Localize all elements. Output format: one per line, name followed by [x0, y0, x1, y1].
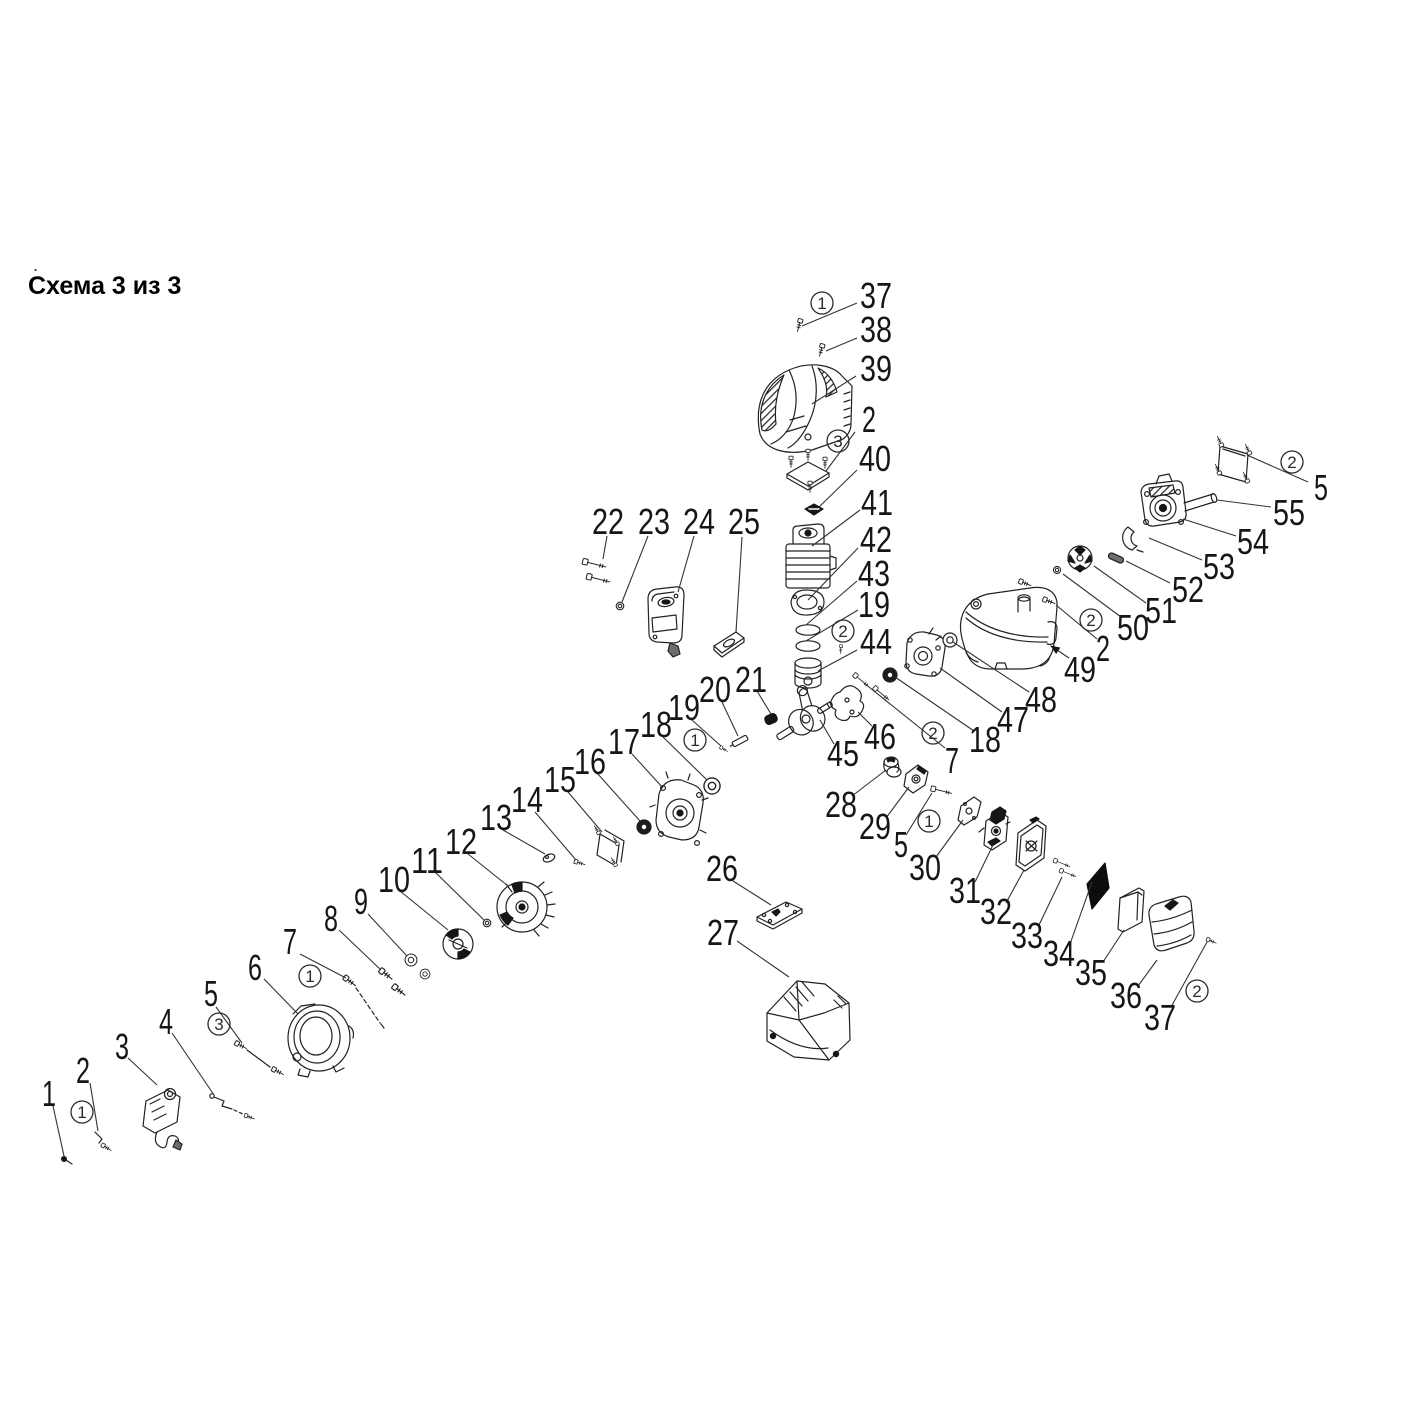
part-label-24-27: 24 — [683, 501, 715, 542]
part-label-2-3: 2 — [862, 399, 876, 440]
screw-small-icon — [839, 645, 843, 654]
part-label-12-38: 12 — [445, 821, 477, 862]
part-label-18-21: 18 — [969, 719, 1001, 760]
part-label-36-61: 36 — [1110, 975, 1142, 1016]
part-screw-set-5 — [234, 1040, 285, 1076]
part-label-13-37: 13 — [480, 797, 512, 838]
diagram-canvas: . Схема 3 из 3 — [0, 0, 1425, 1425]
part-filter-foam-35 — [1118, 888, 1144, 932]
leader-line-3-47 — [128, 1058, 157, 1085]
leader-line-26-50 — [733, 881, 771, 905]
part-label-1-49: 1 — [42, 1073, 56, 1114]
part-screw-2 — [95, 1132, 112, 1152]
leader-line-38-1 — [826, 338, 857, 351]
part-label-5-10: 5 — [1314, 467, 1328, 508]
part-label-2-17: 2 — [1096, 628, 1110, 669]
oil-seal-icon — [883, 668, 897, 682]
qty-marker-text-1-7: 1 — [305, 967, 314, 986]
part-label-23-26: 23 — [638, 501, 670, 542]
part-fan-rotor — [1068, 546, 1092, 572]
part-label-48-19: 48 — [1025, 679, 1057, 720]
part-label-11-39: 11 — [411, 840, 443, 881]
bearing-icon — [943, 633, 957, 647]
part-label-28-52: 28 — [825, 784, 857, 825]
part-label-3-47: 3 — [115, 1026, 129, 1067]
part-label-54-12: 54 — [1237, 521, 1269, 562]
oil-seal-16-icon — [637, 820, 651, 834]
part-mount-plate — [787, 449, 829, 492]
part-bracket-15 — [593, 825, 624, 867]
part-label-51-15: 51 — [1145, 590, 1177, 631]
part-label-2-48: 2 — [76, 1050, 90, 1091]
leader-line-54-12 — [1183, 519, 1236, 536]
part-label-44-9: 44 — [860, 621, 892, 662]
qty-marker-text-3-8: 3 — [214, 1015, 223, 1034]
leader-line-4-46 — [172, 1033, 214, 1095]
part-gear-head — [1141, 474, 1218, 526]
part-label-40-4: 40 — [859, 438, 891, 479]
qty-marker-text-1-6: 1 — [690, 731, 699, 750]
exploded-diagram: 3738392404142431944555545352515024948471… — [0, 0, 1425, 1425]
part-pin-20 — [729, 735, 748, 749]
screws-8-icon — [378, 967, 406, 997]
part-label-14-36: 14 — [511, 779, 543, 820]
bolt-5-icon — [930, 786, 952, 796]
leader-line-41-5 — [812, 510, 860, 546]
part-label-35-60: 35 — [1075, 952, 1107, 993]
part-label-29-53: 29 — [859, 806, 891, 847]
part-elbow-28 — [884, 757, 901, 777]
part-label-19-8: 19 — [858, 584, 890, 625]
screw-37-icon — [795, 318, 803, 332]
part-label-16-34: 16 — [574, 741, 606, 782]
part-label-22-25: 22 — [592, 501, 624, 542]
part-gasket-plate-26 — [757, 902, 802, 929]
part-label-5-54: 5 — [894, 824, 908, 865]
part-label-47-20: 47 — [997, 699, 1029, 740]
part-gasket-30 — [958, 797, 981, 825]
part-label-15-35: 15 — [544, 759, 576, 800]
part-label-39-2: 39 — [860, 348, 892, 389]
part-label-21-29: 21 — [735, 659, 767, 700]
part-label-33-58: 33 — [1011, 915, 1043, 956]
qty-marker-text-1-0: 1 — [817, 294, 826, 313]
qty-marker-text-2-3: 2 — [1287, 453, 1296, 472]
part-label-53-13: 53 — [1203, 546, 1235, 587]
part-label-7-22: 7 — [945, 740, 959, 781]
part-label-6-44: 6 — [248, 947, 262, 988]
part-label-5-45: 5 — [204, 973, 218, 1014]
part-pin — [1107, 552, 1124, 564]
part-crankcase-right — [905, 628, 945, 676]
part-label-37-62: 37 — [1144, 997, 1176, 1038]
part-label-31-56: 31 — [949, 870, 981, 911]
part-fan-housing — [288, 1004, 354, 1077]
part-label-46-23: 46 — [864, 716, 896, 757]
part-label-4-46: 4 — [159, 1001, 173, 1042]
part-label-27-51: 27 — [707, 912, 739, 953]
leader-line-27-51 — [737, 941, 789, 977]
part-label-9-41: 9 — [354, 881, 368, 922]
leader-line-37-0 — [802, 303, 857, 326]
qty-marker-text-2-5: 2 — [928, 724, 937, 743]
part-label-55-11: 55 — [1273, 492, 1305, 533]
leader-line-9-41 — [368, 914, 407, 956]
part-bottom-cover-27 — [767, 981, 850, 1060]
part-carburetor-31 — [979, 807, 1010, 850]
part-label-49-18: 49 — [1064, 649, 1096, 690]
leader-line-25-28 — [736, 537, 742, 632]
part-label-32-57: 32 — [980, 891, 1012, 932]
leader-line-47-20 — [940, 668, 1002, 712]
part-screw-1 — [62, 1157, 72, 1164]
leader-line-18-21 — [895, 677, 974, 731]
part-label-18-32: 18 — [640, 704, 672, 745]
part-label-41-5: 41 — [861, 482, 893, 523]
qty-marker-text-2-2: 2 — [838, 622, 847, 641]
qty-marker-text-2-11: 2 — [1192, 982, 1201, 1001]
part-clamp — [1123, 527, 1143, 552]
part-cylinder-gasket — [791, 590, 824, 615]
part-label-45-24: 45 — [827, 733, 859, 774]
nut-11-icon — [483, 919, 491, 927]
part-label-26-50: 26 — [706, 848, 738, 889]
part-ignition-coil — [143, 1089, 182, 1151]
leader-line-24-27 — [678, 536, 694, 592]
part-label-34-59: 34 — [1043, 933, 1075, 974]
part-label-17-33: 17 — [608, 721, 640, 762]
part-label-20-30: 20 — [699, 669, 731, 710]
leader-line-23-26 — [622, 536, 648, 602]
part-label-30-55: 30 — [909, 847, 941, 888]
screw-37r-icon — [1206, 937, 1217, 945]
leader-line-8-42 — [339, 930, 381, 970]
part-throttle-rod-4 — [210, 1094, 255, 1121]
nut-23-icon — [616, 602, 624, 610]
part-handle-frame — [1214, 435, 1253, 483]
part-crankcase-gasket — [831, 686, 864, 721]
qty-marker-text-3-1: 3 — [833, 432, 842, 451]
part-label-10-40: 10 — [378, 859, 410, 900]
leader-line-6-44 — [264, 979, 298, 1014]
nut-icon — [1053, 566, 1060, 573]
leader-line-53-13 — [1149, 538, 1202, 560]
part-cap-21 — [764, 712, 779, 725]
screw-38-icon — [817, 343, 825, 357]
leader-line-48-19 — [953, 642, 1029, 692]
qty-marker-text-1-10: 1 — [924, 812, 933, 831]
screw-14-icon — [574, 859, 586, 866]
part-long-screw-7 — [343, 975, 384, 1028]
bearing-18-icon — [704, 778, 720, 794]
part-airfilter-base-32 — [1016, 817, 1046, 871]
part-flywheel — [497, 882, 555, 936]
part-label-8-42: 8 — [324, 898, 338, 939]
part-airfilter-cover-36 — [1149, 896, 1194, 951]
leader-line-44-9 — [818, 650, 857, 671]
leader-line-55-11 — [1217, 500, 1271, 507]
part-label-19-31: 19 — [668, 687, 700, 728]
part-label-25-28: 25 — [728, 501, 760, 542]
part-clutch — [443, 929, 473, 959]
part-label-50-16: 50 — [1117, 607, 1149, 648]
screws-33-icon — [1053, 858, 1077, 879]
qty-marker-text-1-9: 1 — [77, 1103, 86, 1122]
qty-marker-text-2-4: 2 — [1086, 611, 1095, 630]
leader-line-52-14 — [1126, 561, 1170, 583]
muffler-bolts-icon — [582, 558, 611, 585]
part-label-38-1: 38 — [860, 309, 892, 350]
part-label-7-43: 7 — [283, 921, 297, 962]
leader-line-42-6 — [808, 548, 858, 600]
leader-line-51-15 — [1094, 566, 1146, 603]
part-muffler — [648, 587, 684, 657]
leader-line-5-10 — [1247, 455, 1308, 482]
part-piston — [795, 658, 821, 688]
washers-icon — [405, 954, 430, 979]
part-heat-shield — [714, 632, 744, 657]
part-piston-rings — [796, 625, 820, 651]
screw-19-icon — [719, 745, 728, 752]
